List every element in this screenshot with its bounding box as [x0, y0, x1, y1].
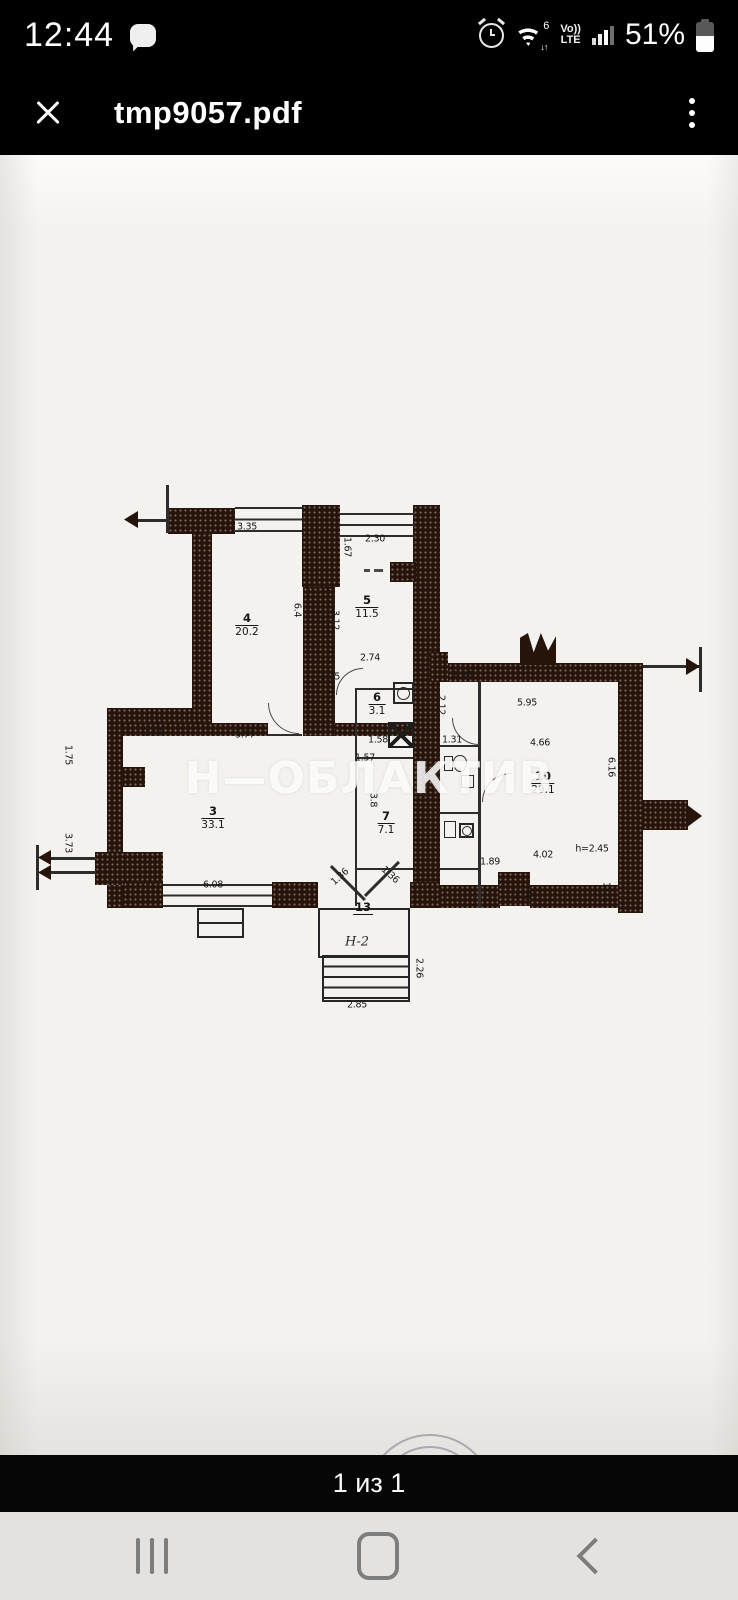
room-label: 63.1 — [369, 691, 386, 717]
dimension-label: 2.85 — [347, 1000, 367, 1011]
page-indicator-bar: 1 из 1 — [0, 1455, 738, 1512]
watermark-text: Н—ОБЛАКТИВ — [0, 753, 738, 804]
dimension-label: 1.58 — [368, 735, 388, 746]
section-arrow-icon — [686, 658, 700, 675]
app-bar: tmp9057.pdf — [0, 70, 738, 155]
section-arrow-icon — [686, 804, 702, 828]
room-label: 13 — [353, 901, 373, 915]
recents-button[interactable] — [130, 1532, 174, 1580]
floorplan-drawing: Н-2 Н—ОБЛАКТИВ 3.351.672.306.43.122.741.… — [0, 155, 738, 1455]
dimension-label: 1.73 — [601, 882, 612, 902]
double-door — [197, 908, 244, 938]
dimension-label: 5.95 — [517, 698, 537, 709]
home-button[interactable] — [357, 1532, 399, 1580]
chat-bubble-icon — [130, 24, 156, 47]
dimension-label: 4.66 — [530, 738, 550, 749]
wifi-6-badge: 6 — [543, 20, 549, 32]
back-button[interactable] — [577, 1538, 614, 1575]
dimension-label: 2.24 — [142, 728, 162, 739]
vent-shaft-icon — [520, 633, 556, 665]
dimension-label: 3.77 — [235, 730, 255, 741]
dimension-label: 5.30 — [515, 892, 535, 903]
dimension-label: 1.31 — [442, 735, 462, 746]
battery-icon — [696, 22, 714, 52]
section-arrow-icon — [124, 511, 138, 528]
ventilation-duct-icon — [388, 722, 414, 748]
sink-icon — [459, 823, 474, 838]
dimension-label: 2.12 — [436, 695, 447, 715]
cistern-icon — [444, 821, 456, 838]
dimension-label: 2.30 — [365, 534, 385, 545]
room-label: 333.1 — [201, 805, 224, 831]
section-arrow-icon — [38, 865, 51, 880]
dimension-label: 6.4 — [292, 603, 303, 617]
page-indicator: 1 из 1 — [333, 1468, 406, 1499]
room-label: 511.5 — [355, 594, 378, 620]
signal-strength-icon — [592, 25, 614, 45]
dimension-label: 2.26 — [414, 958, 425, 978]
vestibule — [318, 908, 410, 958]
dimension-label: 3.35 — [237, 522, 257, 533]
dimension-label: 6.08 — [203, 880, 223, 891]
status-icons: 6 ↓↑ Vo)) LTE 51% — [479, 18, 714, 52]
room-label: 77.1 — [378, 810, 395, 836]
dimension-label: 1.89 — [480, 857, 500, 868]
washing-machine-icon — [393, 682, 414, 704]
dimension-label: 3.73 — [63, 833, 74, 853]
dimension-label: 4.02 — [533, 850, 553, 861]
dimension-label: 3.12 — [330, 610, 341, 630]
wifi-traffic-arrows: ↓↑ — [540, 42, 547, 52]
dimension-label: 2.74 — [360, 653, 380, 664]
clock-time: 12:44 — [24, 16, 114, 55]
alarm-clock-icon — [479, 23, 504, 48]
dimension-label: 1.67 — [342, 537, 353, 557]
wifi-icon: 6 ↓↑ — [515, 22, 549, 48]
dimension-label: h=2.45 — [575, 844, 608, 855]
close-button[interactable] — [26, 91, 70, 135]
room-label: 420.2 — [235, 612, 258, 638]
door-swing — [268, 703, 299, 734]
status-bar: 12:44 6 ↓↑ Vo)) LTE 51% — [0, 0, 738, 70]
section-arrow-icon — [38, 850, 51, 865]
overflow-menu-button[interactable] — [672, 90, 712, 136]
battery-percent: 51% — [625, 18, 685, 52]
dimension-label: 1 — [520, 666, 526, 677]
pdf-page-viewer[interactable]: Н-2 Н—ОБЛАКТИВ 3.351.672.306.43.122.741.… — [0, 155, 738, 1455]
door-swing — [336, 668, 363, 695]
volte-icon: Vo)) LTE — [560, 24, 581, 46]
entrance-stairs — [322, 955, 410, 1002]
document-title: tmp9057.pdf — [114, 95, 302, 131]
android-nav-bar — [0, 1512, 738, 1600]
entrance-label: Н-2 — [345, 935, 369, 950]
dimension-label: 1.58 — [452, 670, 472, 681]
dimension-label: 1.15 — [320, 672, 340, 683]
